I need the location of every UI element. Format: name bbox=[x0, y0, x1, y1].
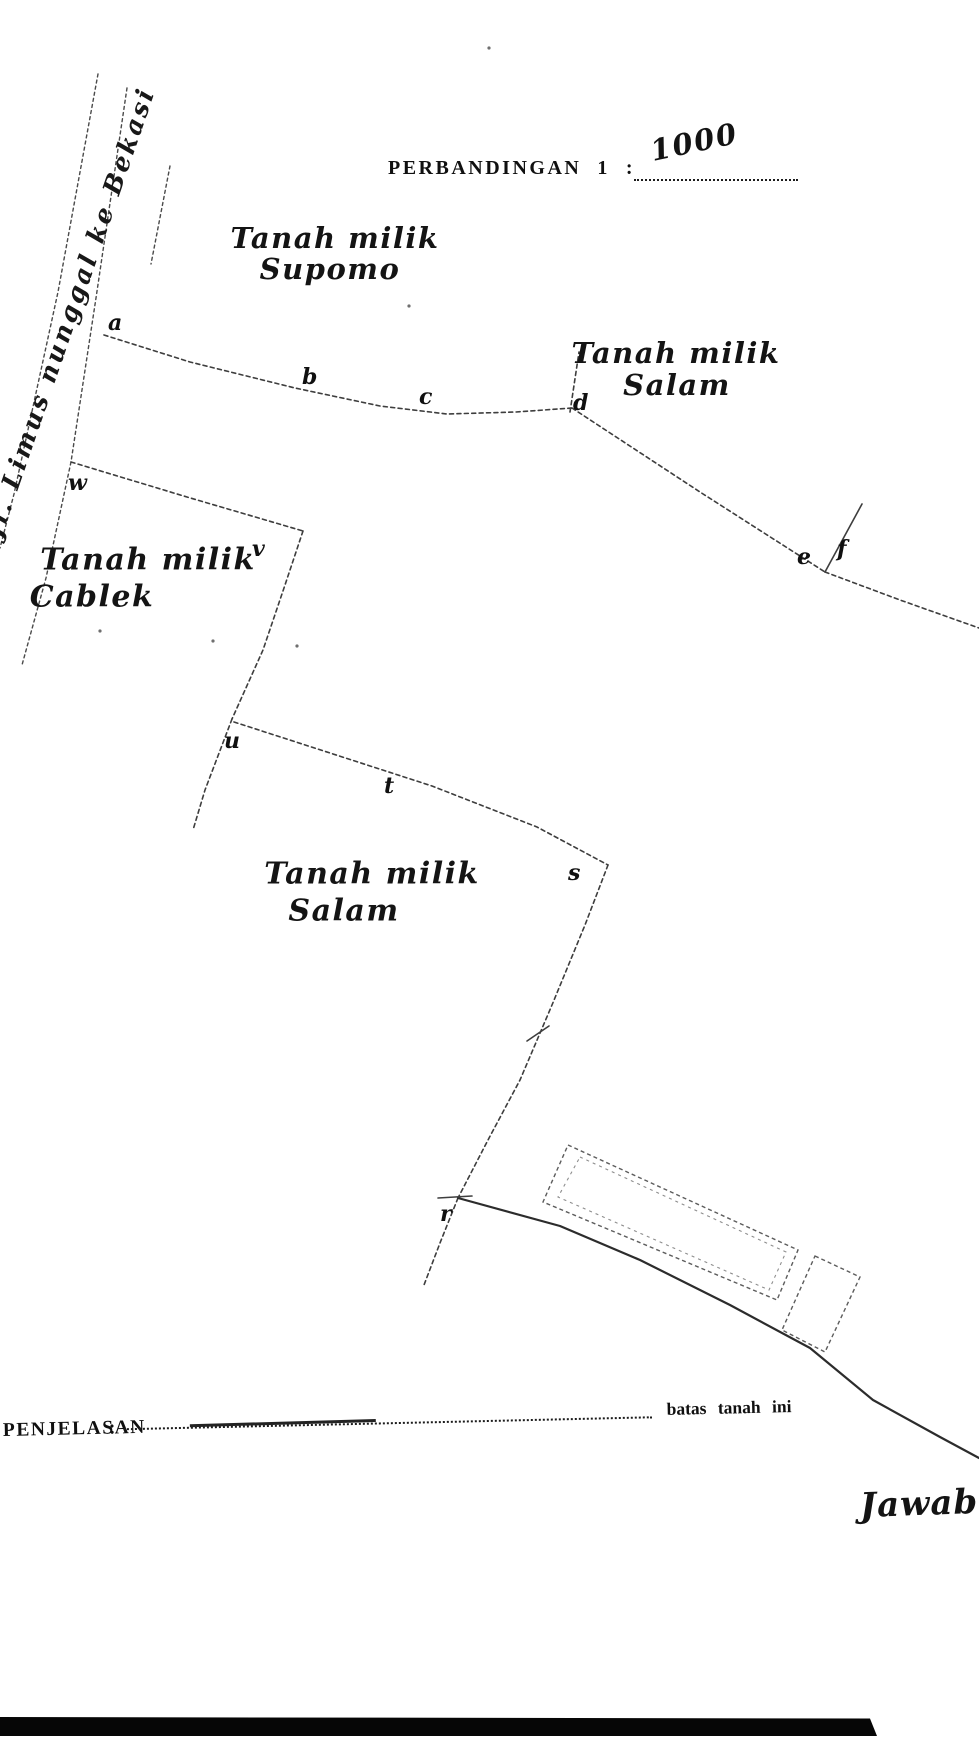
survey-point-label-e: e bbox=[797, 546, 811, 568]
boundary-d-e bbox=[572, 408, 825, 572]
ink-speck bbox=[407, 304, 410, 307]
scale-heading: PERBANDINGAN1: bbox=[388, 157, 635, 180]
legend-colon: : bbox=[109, 1417, 116, 1439]
parcel-label-salam-bottom-line2: Salam bbox=[288, 894, 399, 929]
road-edge-fragment bbox=[151, 166, 170, 264]
building-small bbox=[782, 1256, 860, 1352]
survey-point-label-f: f bbox=[837, 538, 846, 560]
parcel-label-cablek-line1: Tanah milik bbox=[40, 543, 256, 578]
boundary-s-r bbox=[458, 865, 608, 1198]
parcel-label-salam-bottom-line1: Tanah milik bbox=[264, 857, 480, 892]
legend-boundary-line-sample bbox=[190, 1419, 376, 1427]
scale-label: PERBANDINGAN bbox=[388, 157, 581, 179]
survey-point-label-s: s bbox=[568, 862, 580, 884]
survey-point-label-b: b bbox=[302, 366, 317, 388]
boundary-w-v bbox=[71, 462, 303, 531]
ink-speck bbox=[98, 629, 101, 632]
scanned-land-survey-document: PERBANDINGAN1: 1000 Jl. Limus nunggal ke… bbox=[0, 0, 979, 1740]
parcel-label-cablek-line2: Cablek bbox=[30, 580, 155, 615]
ink-speck bbox=[295, 644, 298, 647]
handwritten-note: Jawab bbox=[859, 1482, 979, 1526]
survey-point-label-c: c bbox=[419, 386, 432, 408]
survey-point-label-u: u bbox=[224, 730, 240, 752]
scale-number: 1 bbox=[597, 157, 610, 179]
survey-point-label-a: a bbox=[108, 312, 122, 334]
ink-speck bbox=[487, 46, 490, 49]
parcel-label-salam-top-line2: Salam bbox=[623, 368, 731, 402]
building-large-inner bbox=[558, 1157, 786, 1290]
parcel-label-salam-top-line1: Tanah milik bbox=[572, 336, 781, 370]
ink-speck bbox=[211, 639, 214, 642]
survey-point-label-d: d bbox=[573, 392, 588, 414]
building-large-outer bbox=[543, 1145, 798, 1300]
boundary-a-d bbox=[104, 335, 572, 414]
tick-at-r bbox=[438, 1196, 472, 1198]
legend-line-meaning: batas tanah ini bbox=[666, 1396, 791, 1420]
survey-point-label-t: t bbox=[384, 775, 394, 797]
boundary-u-s bbox=[234, 722, 608, 865]
parcel-label-supomo-line2: Supomo bbox=[260, 252, 401, 286]
scanner-artifact-bar bbox=[0, 1717, 877, 1736]
boundary-e-to-edge bbox=[825, 572, 979, 628]
survey-point-label-w: w bbox=[68, 472, 87, 494]
survey-point-label-r: r bbox=[440, 1203, 452, 1225]
survey-line-drawing bbox=[0, 0, 979, 1740]
parcel-label-supomo-line1: Tanah milik bbox=[231, 221, 440, 255]
